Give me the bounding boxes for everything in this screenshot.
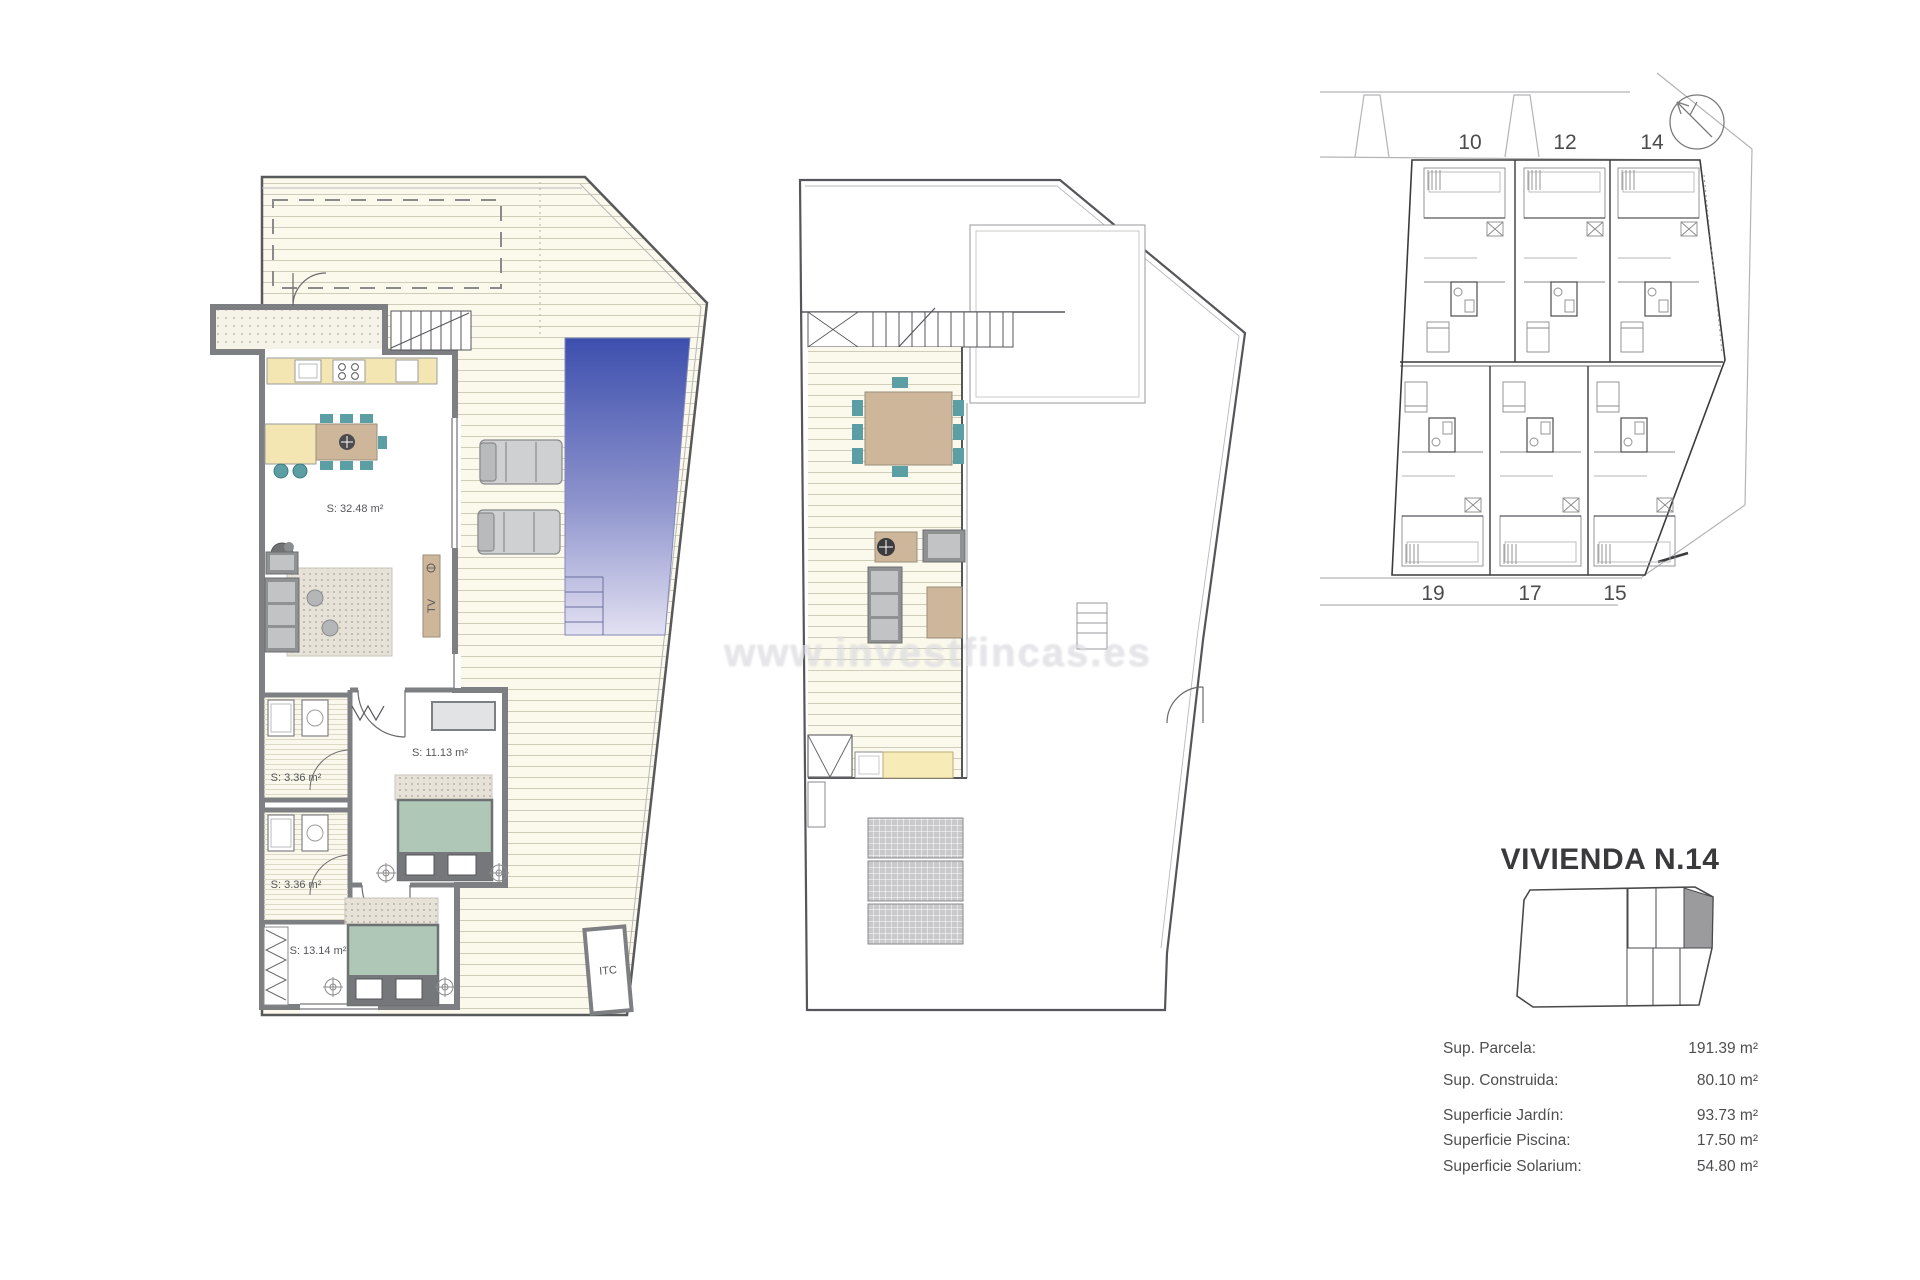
double-bed (348, 925, 438, 1005)
unit-number-19: 19 (1421, 582, 1444, 605)
spec-value: 191.39 m² (1688, 1040, 1758, 1058)
north-compass-icon (1670, 95, 1724, 149)
sun-lounger (480, 440, 562, 484)
kerb-mark (1658, 553, 1688, 562)
itc-closet: ITC (584, 926, 631, 1013)
spec-value: 54.80 m² (1697, 1158, 1758, 1176)
living-kitchen-area-label: S: 32.48 m² (327, 503, 384, 515)
unit-number-15: 15 (1603, 582, 1626, 605)
tv-unit: TV (423, 555, 440, 637)
kitchen-counter (267, 358, 437, 384)
spec-label: Superficie Jardín: (1443, 1107, 1564, 1125)
spec-row-solarium: Superficie Solarium: 54.80 m² (1443, 1158, 1758, 1176)
spec-value: 80.10 m² (1697, 1072, 1758, 1090)
unit-number-10: 10 (1458, 131, 1481, 154)
yellow-bench (883, 752, 953, 778)
stool-icon (293, 464, 307, 478)
rug (287, 568, 392, 656)
dwelling-title: VIVIENDA N.14 (1380, 843, 1840, 877)
site-plan: 10 12 14 19 17 15 (1320, 65, 1765, 610)
bedroom-2-area-label: S: 13.14 m² (290, 945, 347, 957)
unit-number-17: 17 (1518, 582, 1541, 605)
spec-row-parcela: Sup. Parcela: 191.39 m² (1443, 1040, 1758, 1058)
hob-icon (333, 360, 365, 382)
spec-label: Superficie Piscina: (1443, 1132, 1571, 1150)
stool-icon (274, 464, 288, 478)
spec-row-piscina: Superficie Piscina: 17.50 m² (1443, 1132, 1758, 1150)
deck-door-opening (449, 654, 461, 688)
rug (395, 775, 492, 800)
pergola-grid-panels (868, 818, 963, 944)
bedroom-1-area-label: S: 11.13 m² (412, 747, 468, 759)
wardrobe (432, 702, 495, 730)
surface-specs: Sup. Parcela: 191.39 m² Sup. Construida:… (1443, 1040, 1758, 1176)
bathroom-2: S: 3.36 m² (262, 810, 350, 922)
spec-value: 17.50 m² (1697, 1132, 1758, 1150)
floor-plan-sheet: { "watermark": { "text": "www.investfinc… (0, 0, 1920, 1280)
wardrobe-hatch (264, 927, 288, 1005)
unit-number-12: 12 (1553, 131, 1576, 154)
spec-row-jardin: Superficie Jardín: 93.73 m² (1443, 1107, 1758, 1125)
rug (345, 898, 438, 924)
spec-value: 93.73 m² (1697, 1107, 1758, 1125)
bathroom-1-area-label: S: 3.36 m² (271, 772, 322, 784)
highlighted-unit-14 (1684, 888, 1713, 948)
dwelling-block (1392, 160, 1725, 575)
unit-number-14: 14 (1640, 131, 1664, 154)
spec-row-construida: Sup. Construida: 80.10 m² (1443, 1072, 1758, 1090)
spec-label: Sup. Parcela: (1443, 1040, 1536, 1058)
block-locator-diagram (1505, 880, 1725, 1015)
itc-label: ITC (599, 964, 618, 978)
outdoor-dining-table (852, 377, 964, 477)
watermark: www.investfincas.es (688, 631, 1188, 679)
solarium-plan (795, 165, 1255, 1025)
garden-stairs (391, 311, 471, 350)
ground-floor-plan: ITC (200, 140, 720, 1025)
tv-label: TV (426, 598, 438, 613)
bathroom-1: S: 3.36 m² (262, 695, 350, 800)
sliding-window (449, 418, 461, 548)
double-bed (398, 800, 492, 880)
ac-unit (808, 782, 825, 827)
spec-label: Superficie Solarium: (1443, 1158, 1582, 1176)
spec-label: Sup. Construida: (1443, 1072, 1558, 1090)
bathroom-2-area-label: S: 3.36 m² (271, 879, 322, 891)
sun-lounger (478, 510, 560, 554)
